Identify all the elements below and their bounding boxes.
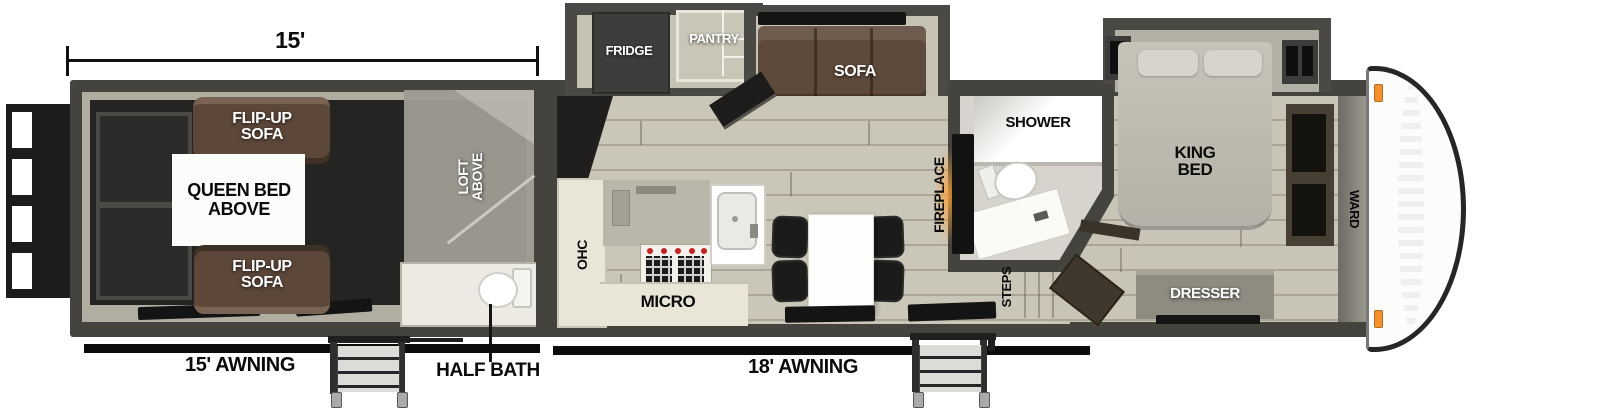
- tv-unit-screen: [1292, 114, 1326, 172]
- steps-foot: [979, 392, 990, 408]
- steps-foot: [397, 392, 408, 408]
- stove-knob: [701, 248, 707, 254]
- pantry-label: PANTRY: [678, 30, 750, 48]
- steps-treads: [337, 346, 400, 392]
- garage-dimension-label: 15': [255, 28, 325, 54]
- steps-treads: [919, 345, 982, 392]
- plank-joint: [1120, 248, 1122, 272]
- rv-floorplan: 15' FRIDGE PANTRY SOFA FLIP-UP SOFA QUEE…: [0, 0, 1600, 411]
- half-bath-label: HALF BATH: [430, 360, 546, 382]
- queen-bed-above-label: QUEEN BED ABOVE: [180, 160, 298, 240]
- tv-bar: [758, 12, 906, 25]
- stove-knob: [689, 248, 695, 254]
- ohc-label: OHC: [574, 200, 590, 310]
- front-cap-texture: [1398, 84, 1424, 328]
- step-line: [1038, 272, 1040, 318]
- step-line: [1052, 272, 1054, 318]
- half-bath-leader-line: [489, 304, 492, 362]
- plank-joint: [790, 172, 792, 196]
- dresser-mat: [1156, 315, 1260, 324]
- steps-hook: [988, 333, 995, 351]
- bed-pillow-left: [1138, 50, 1198, 76]
- steps-rail: [912, 340, 919, 392]
- steps-rail: [330, 342, 337, 394]
- ward-label: WARD: [1346, 174, 1362, 244]
- awning-rear-label: 15' AWNING: [150, 352, 330, 378]
- bed-pillow-right: [1204, 50, 1262, 76]
- bedroom-window-right-pane1: [1286, 46, 1298, 76]
- loft-above-label: LOFT ABOVE: [452, 135, 488, 219]
- clearance-light-bottom: [1374, 310, 1383, 328]
- tv-unit-shelf: [1292, 184, 1326, 236]
- king-bed: KING BED: [1118, 42, 1272, 230]
- counter-item2: [636, 186, 676, 194]
- king-bed-label: KING BED: [1160, 138, 1230, 184]
- steps-foot: [913, 392, 924, 408]
- bedroom-tv-unit: [1286, 104, 1334, 246]
- steps-foot: [331, 392, 342, 408]
- fireplace-label: FIREPLACE: [931, 135, 947, 255]
- fireplace: [952, 134, 974, 254]
- dimension-line: [66, 59, 539, 62]
- flip-up-sofa-bottom-label: FLIP-UP SOFA: [212, 250, 312, 300]
- sink-faucet: [750, 224, 758, 238]
- toilet-bowl: [478, 272, 518, 308]
- step-line: [1024, 272, 1026, 318]
- micro-label: MICRO: [608, 290, 728, 314]
- clearance-light-top: [1374, 84, 1383, 102]
- dimension-tick-right: [536, 46, 539, 76]
- awning-main-label: 18' AWNING: [713, 354, 893, 380]
- flip-up-sofa-top-label: FLIP-UP SOFA: [212, 102, 312, 152]
- rear-ramp-slats: [12, 112, 32, 290]
- fridge-label: FRIDGE: [594, 42, 664, 60]
- stove-grate-right: [678, 256, 704, 282]
- steps-side-line: [408, 338, 463, 342]
- entry-mat-left: [785, 305, 875, 323]
- stove-knob: [675, 248, 681, 254]
- plank-joint: [868, 121, 870, 145]
- dining-chair: [771, 259, 808, 302]
- steps-top-bar: [910, 333, 996, 340]
- counter-item1: [612, 190, 630, 226]
- shower-label: SHOWER: [976, 112, 1100, 134]
- sofa-label: SOFA: [815, 62, 895, 82]
- stove-grate-left: [646, 256, 672, 282]
- steps-label: STEPS: [999, 252, 1015, 322]
- entry-mat-right: [908, 301, 997, 321]
- dresser-label: DRESSER: [1146, 282, 1264, 306]
- dining-table: [808, 214, 874, 314]
- entry-steps-main: [910, 330, 1000, 408]
- dining-chair: [771, 215, 808, 258]
- stove-knob: [661, 248, 667, 254]
- bedroom-window-right-pane2: [1302, 46, 1313, 76]
- sink-drain: [732, 216, 738, 222]
- plank-joint: [640, 121, 642, 145]
- stove-knob: [647, 248, 653, 254]
